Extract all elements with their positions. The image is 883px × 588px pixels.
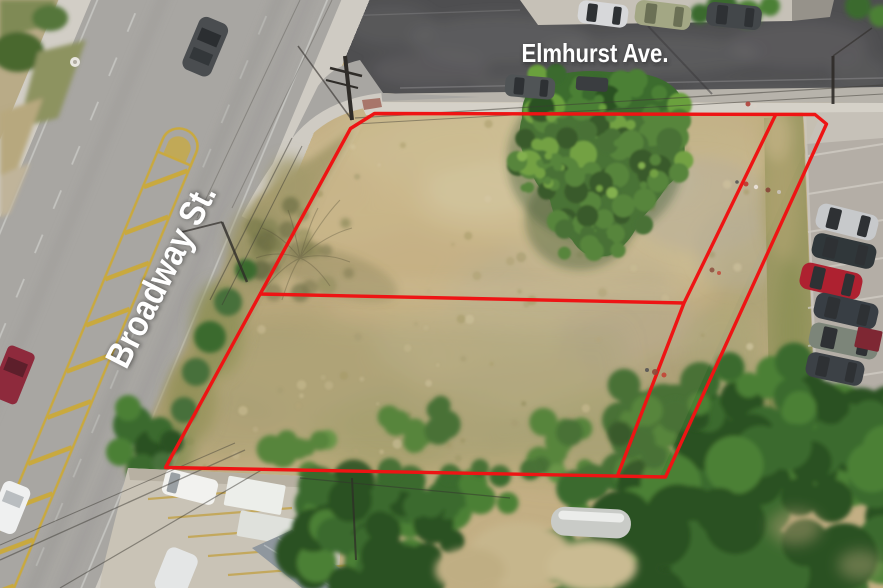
svg-text:Elmhurst Ave.: Elmhurst Ave.	[522, 38, 669, 68]
